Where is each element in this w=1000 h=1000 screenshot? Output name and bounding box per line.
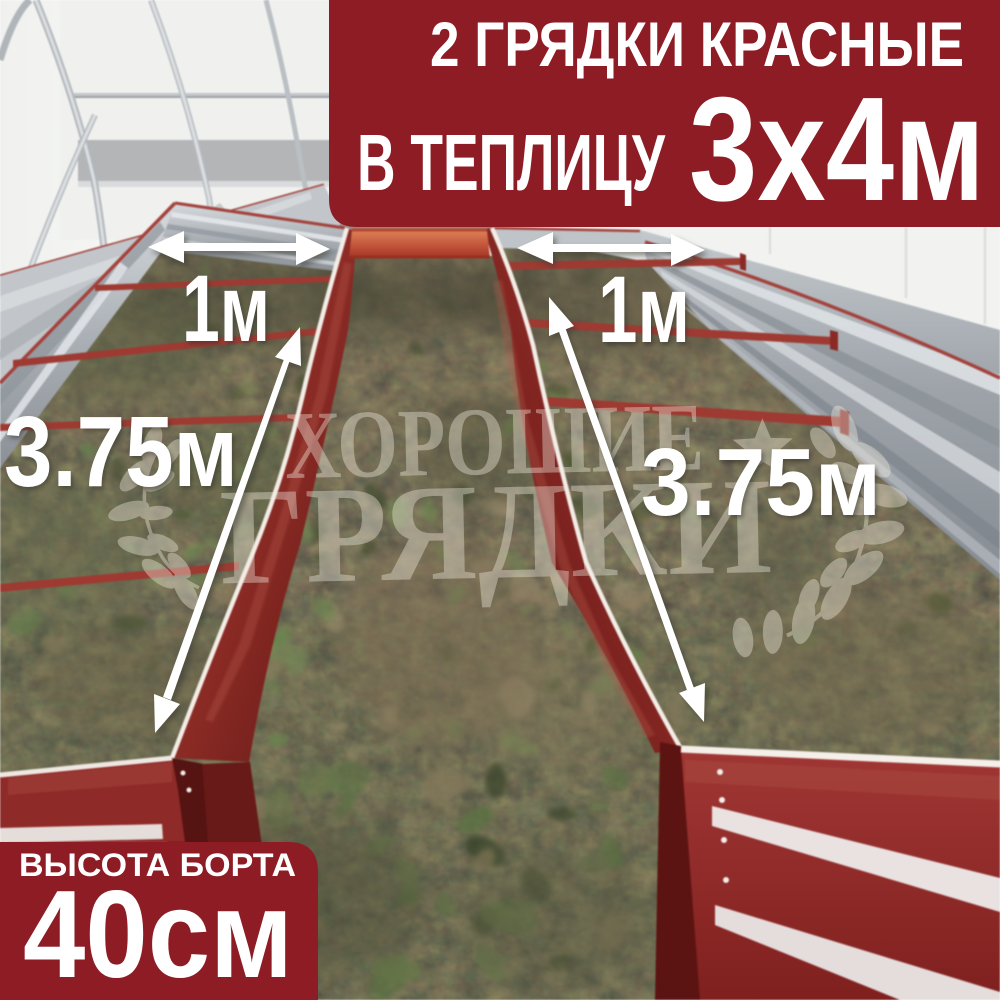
- svg-text:3х4м: 3х4м: [689, 67, 985, 232]
- svg-text:1м: 1м: [182, 256, 270, 362]
- svg-text:3.75м: 3.75м: [4, 396, 238, 508]
- svg-text:3.75м: 3.75м: [641, 429, 881, 536]
- svg-text:В ТЕПЛИЦУ: В ТЕПЛИЦУ: [357, 118, 666, 207]
- svg-text:40см: 40см: [23, 866, 293, 1000]
- svg-text:1м: 1м: [598, 257, 690, 363]
